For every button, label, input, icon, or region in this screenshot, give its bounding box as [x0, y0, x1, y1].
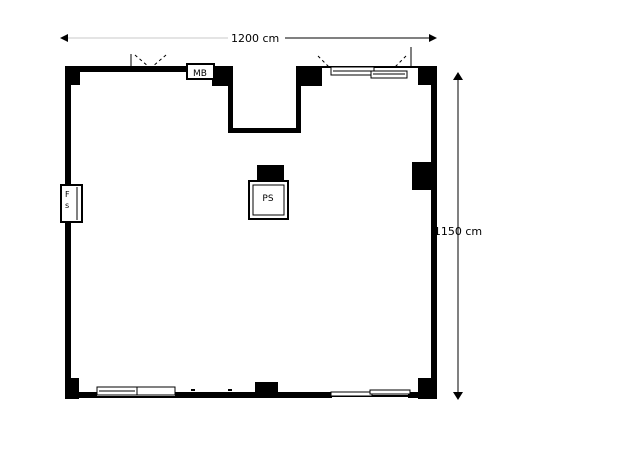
- door-top-left-swing-dash-2: [152, 55, 166, 67]
- dimension-width-arrow-right: [429, 34, 437, 42]
- fs-box: F s: [61, 185, 82, 222]
- dimension-width: 1200 cm: [60, 32, 437, 45]
- window-bottom-tick-2: [228, 389, 232, 391]
- dimension-height-label: 1150 cm: [434, 225, 482, 238]
- column-bottom-right-corner: [418, 378, 437, 399]
- notch-recess: [228, 66, 301, 133]
- dimension-width-arrow-left: [60, 34, 68, 42]
- column-bottom-wall-mid: [255, 382, 278, 393]
- ps-unit: PS: [249, 165, 288, 219]
- wall-right: [431, 66, 437, 399]
- column-bottom-left-corner: [65, 378, 79, 399]
- notch-wall-bottom: [228, 128, 301, 133]
- window-bottom-right-panel-1: [331, 392, 372, 396]
- door-top-left-swing-dash-1: [135, 55, 149, 67]
- window-top-right: [318, 47, 411, 78]
- dimension-height: 1150 cm: [434, 72, 482, 400]
- fs-box-label-bottom: s: [65, 201, 69, 210]
- floor-plan-drawing: 1200 cm 1150 cm: [0, 0, 640, 452]
- dimension-height-arrow-bottom: [453, 392, 463, 400]
- ps-unit-block: [257, 165, 284, 181]
- fs-box-label-top: F: [65, 190, 70, 199]
- column-top-left-corner: [65, 66, 80, 85]
- wall-bottom-thin-under-window-left: [97, 396, 175, 398]
- walls: [65, 66, 437, 399]
- wall-left: [65, 66, 71, 399]
- floor-plan-canvas: 1200 cm 1150 cm: [0, 0, 640, 452]
- ps-unit-label: PS: [262, 194, 273, 204]
- column-top-right-corner: [418, 66, 437, 85]
- door-top-left: [131, 54, 166, 67]
- window-bottom-tick-1: [191, 389, 195, 391]
- column-notch-right: [296, 66, 322, 86]
- column-notch-left: [212, 66, 233, 86]
- mb-box-label: MB: [193, 69, 207, 79]
- window-bottom-right-panel-2: [370, 390, 410, 394]
- mb-box: MB: [187, 64, 214, 79]
- dimension-width-label: 1200 cm: [231, 32, 279, 45]
- columns: [65, 66, 437, 399]
- wall-bottom-segment-2: [175, 392, 332, 398]
- column-right-wall-mid: [412, 162, 431, 190]
